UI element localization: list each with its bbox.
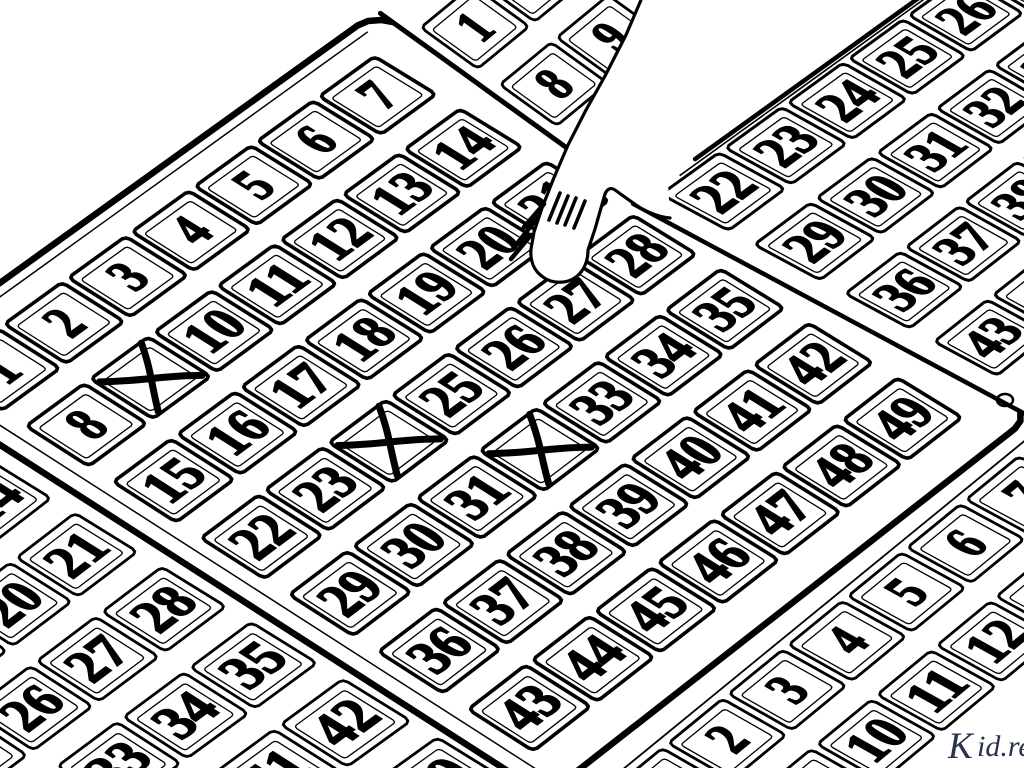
svg-text:id.re: id.re xyxy=(977,730,1024,763)
svg-text:K: K xyxy=(947,726,975,767)
